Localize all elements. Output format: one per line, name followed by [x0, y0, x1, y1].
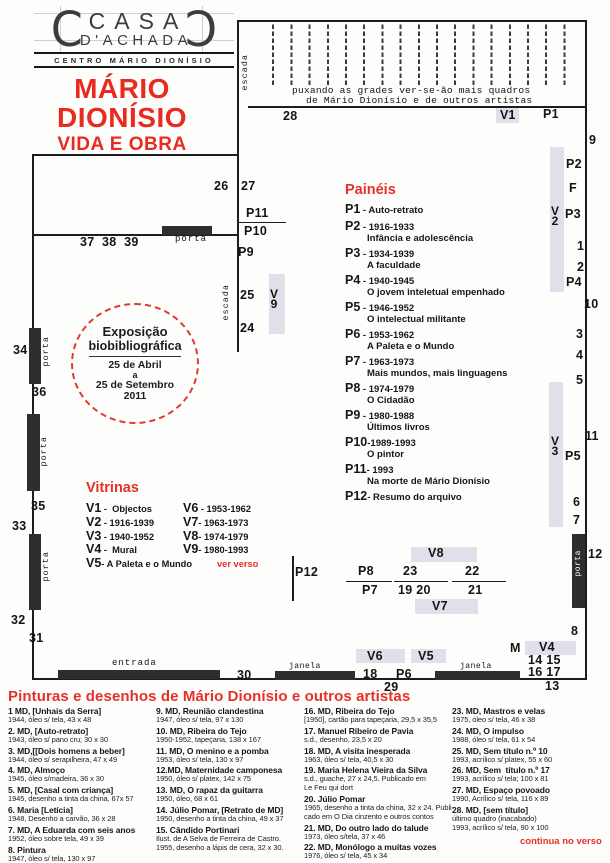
- grades-rail: [248, 106, 587, 108]
- work-item: 21. MD, Do outro lado do talude1973, óle…: [304, 823, 452, 842]
- work-number-label: 9: [589, 133, 596, 147]
- painel-item-p5: P5 - 1946-1952O intelectual militante: [345, 301, 560, 326]
- painel-3-label: P3: [565, 207, 581, 221]
- work-number-label: 6: [573, 495, 580, 509]
- vitrine-label: V 9: [270, 290, 278, 309]
- work-item: 24. MD, O impulso1988, óleo s/ tela, 61 …: [452, 726, 600, 745]
- vitrine-label: V8: [428, 546, 444, 560]
- painel-5-label: P5: [565, 449, 581, 463]
- porta-label: porta: [175, 234, 207, 244]
- divider-p8-p7: [346, 581, 392, 582]
- work-item: 26. MD, Sem título n.º 171993, acrílico …: [452, 765, 600, 784]
- painel-12-label: P12: [295, 565, 318, 579]
- work-number-label: 31: [29, 631, 44, 645]
- work-number-label: 34: [13, 343, 28, 357]
- paineis-heading: Painéis: [345, 182, 560, 198]
- work-number-label: 28: [283, 109, 298, 123]
- painel-item-p3: P3 - 1934-1939A faculdade: [345, 247, 560, 272]
- paineis-items: P1 - Auto-retratoP2 - 1916-1933Infância …: [345, 203, 560, 504]
- vitrinas-list: Vitrinas V1 - ObjectosV6 - 1953-1962V2 -…: [86, 480, 261, 570]
- title-line-2: DIONÍSIO: [22, 103, 222, 132]
- logo: C CASA D'ACHADA C CENTRO MÁRIO DIONÍSIO: [34, 6, 234, 68]
- porta-label: porta: [39, 436, 49, 467]
- logo-casa-dachada: C CASA D'ACHADA C: [34, 6, 234, 52]
- divider-22-21: [452, 581, 506, 582]
- work-number-label: 16 17: [528, 665, 561, 679]
- painel-item-p6: P6 - 1953-1962A Paleta e o Mundo: [345, 328, 560, 353]
- work-item: 14. Júlio Pomar, [Retrato de MD]1950, de…: [156, 805, 304, 824]
- work-number-label: 7: [573, 513, 580, 527]
- continua-note: continua no verso: [520, 836, 602, 847]
- work-number-label: 2: [577, 260, 584, 274]
- work-number-label: 12: [588, 547, 603, 561]
- work-number-label: 25: [240, 288, 255, 302]
- work-item: 9. MD, Reunião clandestina1947, óleo s/ …: [156, 706, 304, 725]
- grades-dashed-lines: [256, 22, 578, 85]
- marker-f-label: F: [569, 181, 577, 195]
- painel-item-p7: P7 - 1963-1973Mais mundos, mais linguage…: [345, 355, 560, 380]
- vitrina-row: V1 - ObjectosV6 - 1953-1962: [86, 501, 261, 515]
- vitrinas-heading: Vitrinas: [86, 480, 261, 496]
- painel-8-label: P8: [358, 564, 374, 578]
- vitrina-row: V2 - 1916-1939V7- 1963-1973: [86, 515, 261, 529]
- work-item: 13. MD, O rapaz da guitarra1950, óleo, 6…: [156, 785, 304, 804]
- works-list: 1 MD, [Unhais da Serra]1944, óleo s/ tel…: [8, 706, 608, 863]
- work-item: 1 MD, [Unhais da Serra]1944, óleo s/ tel…: [8, 706, 156, 725]
- entrance-bar: [58, 670, 220, 679]
- work-item: 7. MD, A Eduarda com seis anos1952, óleo…: [8, 825, 156, 844]
- vitrine-label: V4: [539, 640, 555, 654]
- painel-2-label: P2: [566, 157, 582, 171]
- porta-label: porta: [574, 550, 583, 577]
- work-item: 2. MD, [Auto-retrato]1943, óleo s/ pano …: [8, 726, 156, 745]
- work-item: 8. Pintura1947, óleo s/ tela, 130 x 97: [8, 845, 156, 863]
- wall-room-top: [32, 154, 239, 156]
- work-item: 25. MD, Sem título n.º 101993, acrílico …: [452, 746, 600, 765]
- work-item: 15. Cândido PortinariIlust. de A Selva d…: [156, 825, 304, 853]
- works-column: 9. MD, Reunião clandestina1947, óleo s/ …: [156, 706, 304, 863]
- work-item: 16. MD, Ribeira do Tejo[1950], cartão pa…: [304, 706, 452, 725]
- vitrine-label: V7: [432, 599, 448, 613]
- painel-item-p8: P8 - 1974-1979O Cidadão: [345, 382, 560, 407]
- work-item: 23. MD, Mastros e velas1975, óleo s/ tel…: [452, 706, 600, 725]
- painel-6-label: P6: [396, 667, 412, 681]
- door-bar-left-1: [29, 328, 41, 384]
- logo-words: CASA D'ACHADA: [76, 10, 192, 48]
- work-item: 5. MD, [Casal com criança]1945, desenho …: [8, 785, 156, 804]
- vitrina-row: V4 - MuralV9- 1980-1993: [86, 542, 261, 556]
- stamp-divider: [89, 356, 181, 357]
- work-number-label: 13: [545, 679, 560, 693]
- painel-item-p10: P10-1989-1993O pintor: [345, 436, 560, 461]
- title-line-1: MÁRIO: [22, 74, 222, 103]
- escada-label: escada: [221, 284, 231, 321]
- stamp-year: 2011: [73, 391, 197, 402]
- wall-right: [585, 20, 587, 680]
- work-item: 11. MD, O menino e a pomba1953, óleo s/ …: [156, 746, 304, 765]
- work-number-label: 24: [240, 321, 255, 335]
- paineis-list: Painéis P1 - Auto-retratoP2 - 1916-1933I…: [345, 182, 560, 506]
- work-number-label: 30: [237, 668, 252, 682]
- work-item: 19. Maria Helena Vieira da Silvas.d., gu…: [304, 765, 452, 793]
- painel-item-p12: P12- Resumo do arquivo: [345, 490, 560, 504]
- stamp-line-1: Exposição: [73, 325, 197, 339]
- work-number-label: 5: [576, 373, 583, 387]
- janela-label: janela: [460, 662, 492, 671]
- painel-10-label: P10: [244, 224, 267, 238]
- work-item: 22. MD, Monólogo a muitas vozes1976, óle…: [304, 842, 452, 861]
- work-number-label: 22: [465, 564, 480, 578]
- wall-plan-left: [237, 20, 239, 352]
- works-column: 1 MD, [Unhais da Serra]1944, óleo s/ tel…: [8, 706, 156, 863]
- works-column: 16. MD, Ribeira do Tejo[1950], cartão pa…: [304, 706, 452, 863]
- vitrine-label: V6: [367, 649, 383, 663]
- vitrina-row: V5- A Paleta e o Mundover verso: [86, 556, 261, 570]
- painel-11-label: P11: [246, 206, 268, 220]
- works-heading: Pinturas e desenhos de Mário Dionísio e …: [8, 688, 410, 705]
- divider-23-1920: [394, 581, 448, 582]
- work-number-label: 23: [403, 564, 418, 578]
- work-number-label: 18: [363, 667, 378, 681]
- vitrina-row: V3 - 1940-1952V8- 1974-1979: [86, 529, 261, 543]
- work-number-label: 21: [468, 583, 483, 597]
- work-number-label: 35: [31, 499, 46, 513]
- escada-label: escada: [240, 54, 250, 91]
- porta-label: porta: [41, 551, 51, 582]
- work-number-label: 37 38 39: [80, 235, 139, 249]
- work-number-label: 33: [12, 519, 27, 533]
- work-item: 12.MD, Maternidade camponesa1950, óleo s…: [156, 765, 304, 784]
- p12-partition: [292, 556, 294, 601]
- painel-item-p11: P11- 1993Na morte de Mário Dionísio: [345, 463, 560, 488]
- painel-9-label: P9: [238, 245, 254, 259]
- exhibition-plan-page: C CASA D'ACHADA C CENTRO MÁRIO DIONÍSIO …: [0, 0, 610, 863]
- painel-item-p2: P2 - 1916-1933Infância e adolescência: [345, 220, 560, 245]
- work-number-label: 32: [11, 613, 26, 627]
- work-number-label: 3: [576, 327, 583, 341]
- logo-word-casa: CASA: [84, 10, 192, 33]
- porta-label: porta: [41, 336, 51, 367]
- work-item: 28. MD, [sem título]último quadro (inaca…: [452, 805, 600, 833]
- work-item: 17. Manuel Ribeiro de Pavias.d., desenho…: [304, 726, 452, 745]
- painel-1-label: P1: [543, 107, 559, 121]
- work-number-label: 27: [241, 179, 256, 193]
- work-item: 4. MD, Almoço1945, óleo s/madeira, 36 x …: [8, 765, 156, 784]
- work-item: 27. MD, Espaço povoado1990, Acrílico s/ …: [452, 785, 600, 804]
- exhibition-stamp: Exposição biobibliográfica 25 de Abril a…: [71, 303, 199, 424]
- work-number-label: 26: [214, 179, 229, 193]
- page-title: MÁRIO DIONÍSIO VIDA E OBRA: [22, 74, 222, 157]
- work-number-label: 19 20: [398, 583, 431, 597]
- work-item: 18. MD, A visita inesperada1963, óleo s/…: [304, 746, 452, 765]
- painel-item-p1: P1 - Auto-retrato: [345, 203, 560, 217]
- work-item: 3. MD,[[Dois homens a beber]1944, óleo s…: [8, 746, 156, 765]
- window-bar-right: [435, 671, 520, 680]
- work-number-label: 11: [585, 429, 599, 443]
- painel-7-label: P7: [362, 583, 378, 597]
- work-item: 10. MD, Ribeira do Tejo1950-1952, tapeça…: [156, 726, 304, 745]
- entrada-label: entrada: [112, 658, 157, 668]
- divider-p11: [237, 222, 286, 223]
- stamp-line-2: biobibliográfica: [73, 339, 197, 353]
- work-number-label: 36: [32, 385, 47, 399]
- vitrine-v8-highlight: [411, 547, 477, 562]
- door-bar-left-3: [29, 534, 41, 610]
- vitrinas-rows: V1 - ObjectosV6 - 1953-1962V2 - 1916-193…: [86, 501, 261, 570]
- window-bar-left: [275, 671, 355, 680]
- work-number-label: 4: [576, 348, 583, 362]
- grades-note: de Mário Dionísio e de outros artistas: [306, 95, 532, 106]
- work-item: 20. Júlio Pomar1965, desenho a tinta da …: [304, 794, 452, 822]
- vitrine-label: V1: [496, 108, 519, 123]
- marker-m-label: M: [510, 641, 521, 655]
- logo-word-dachada: D'ACHADA: [80, 33, 192, 48]
- work-item: 6. Maria [Letícia]1948, Desenho a carvão…: [8, 805, 156, 824]
- vitrine-label: V5: [418, 649, 434, 663]
- work-number-label: 1: [577, 239, 584, 253]
- work-number-label: 10: [584, 297, 599, 311]
- painel-item-p4: P4 - 1940-1945O jovem inteletual empenha…: [345, 274, 560, 299]
- janela-label: janela: [289, 662, 321, 671]
- work-number-label: 8: [571, 624, 578, 638]
- painel-4-label: P4: [566, 275, 582, 289]
- painel-item-p9: P9 - 1980-1988Últimos livros: [345, 409, 560, 434]
